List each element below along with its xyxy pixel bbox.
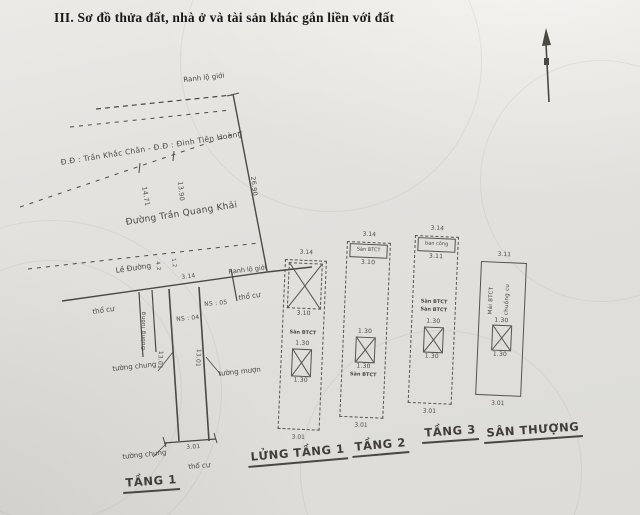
floorplan-tang-3: 3.14 ban công 3.11 Sàn BTCT Sàn BTCT 1.3… bbox=[408, 235, 459, 405]
lane-right-line bbox=[152, 290, 156, 352]
dim-13-01-left: 13.01 bbox=[156, 351, 164, 370]
dashed-line-a bbox=[70, 110, 231, 127]
lane-label: Đường luồng bbox=[141, 296, 147, 350]
floorplan-tang-2: 3.14 Sàn BTCT 3.10 1.30 1.30 Sàn BTCT 3.… bbox=[339, 241, 391, 419]
north-arrow-icon bbox=[542, 28, 551, 102]
stair-box bbox=[491, 325, 512, 352]
scanned-land-certificate-page: III. Sơ đồ thửa đất, nhà ở và tài sản kh… bbox=[0, 0, 640, 515]
void-box bbox=[287, 262, 323, 309]
floorplan-lung-tang-1: 3.14 3.10 Sàn BTCT 1.30 1.30 3.01 bbox=[278, 259, 327, 431]
stair-box bbox=[423, 326, 444, 353]
floorplan-san-thuong: 3.11 Mái BTCT chuồng cu 1.30 1.30 3.01 bbox=[475, 261, 527, 397]
boundary-line bbox=[62, 267, 312, 301]
dim-4-2: 4.2 bbox=[154, 261, 161, 271]
dim-3-01-plot: 3.01 bbox=[186, 443, 201, 451]
stair-box bbox=[355, 336, 376, 363]
plot-left-wall bbox=[169, 289, 179, 441]
dim-1-2: 1.2 bbox=[170, 258, 177, 268]
dim-13-01-right: 13.01 bbox=[194, 349, 202, 368]
ranh-lo-gioi-top-line bbox=[96, 95, 232, 109]
stair-box bbox=[291, 348, 312, 377]
